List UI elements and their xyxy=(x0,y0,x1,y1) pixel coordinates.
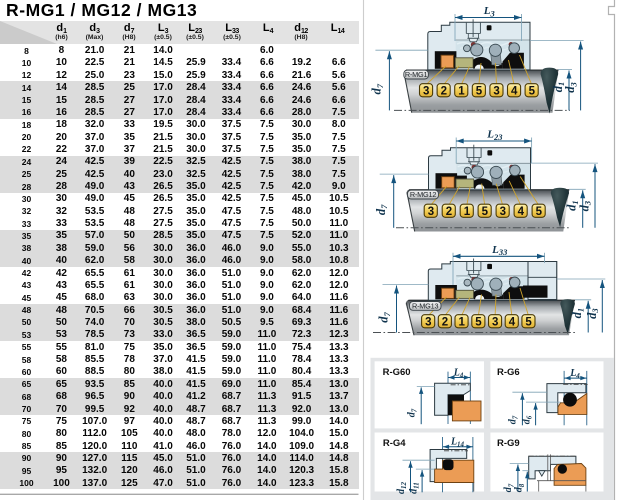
svg-text:d7: d7 xyxy=(374,204,389,215)
svg-text:2: 2 xyxy=(446,206,452,218)
svg-text:4: 4 xyxy=(509,317,516,329)
svg-text:1: 1 xyxy=(458,317,465,329)
svg-text:5: 5 xyxy=(529,86,536,98)
svg-text:1: 1 xyxy=(464,206,471,218)
svg-text:3: 3 xyxy=(423,86,429,98)
svg-text:R-MG12: R-MG12 xyxy=(410,190,437,199)
svg-text:L33: L33 xyxy=(491,244,508,257)
svg-text:3: 3 xyxy=(425,317,431,329)
svg-text:R-G9: R-G9 xyxy=(497,438,520,449)
svg-text:1: 1 xyxy=(458,86,465,98)
svg-text:R-G6: R-G6 xyxy=(497,367,520,378)
svg-text:5: 5 xyxy=(475,317,482,329)
svg-text:5: 5 xyxy=(525,317,532,329)
svg-text:2: 2 xyxy=(441,86,447,98)
svg-text:3: 3 xyxy=(500,206,506,218)
svg-text:2: 2 xyxy=(442,317,448,329)
svg-text:L3: L3 xyxy=(483,5,496,18)
svg-text:d7: d7 xyxy=(370,83,385,94)
svg-text:R-G60: R-G60 xyxy=(383,367,411,378)
svg-text:d3: d3 xyxy=(585,308,600,319)
svg-text:3: 3 xyxy=(492,317,498,329)
svg-text:R-MG1: R-MG1 xyxy=(405,70,428,79)
svg-text:4: 4 xyxy=(518,206,525,218)
svg-text:5: 5 xyxy=(482,206,489,218)
svg-text:4: 4 xyxy=(511,86,518,98)
svg-text:L23: L23 xyxy=(486,129,503,142)
svg-text:5: 5 xyxy=(476,86,483,98)
svg-text:3: 3 xyxy=(428,206,434,218)
svg-text:R-MG13: R-MG13 xyxy=(412,302,439,311)
svg-text:d7: d7 xyxy=(377,312,392,323)
svg-text:5: 5 xyxy=(536,206,543,218)
svg-text:3: 3 xyxy=(493,86,499,98)
svg-text:R-G4: R-G4 xyxy=(383,438,406,449)
